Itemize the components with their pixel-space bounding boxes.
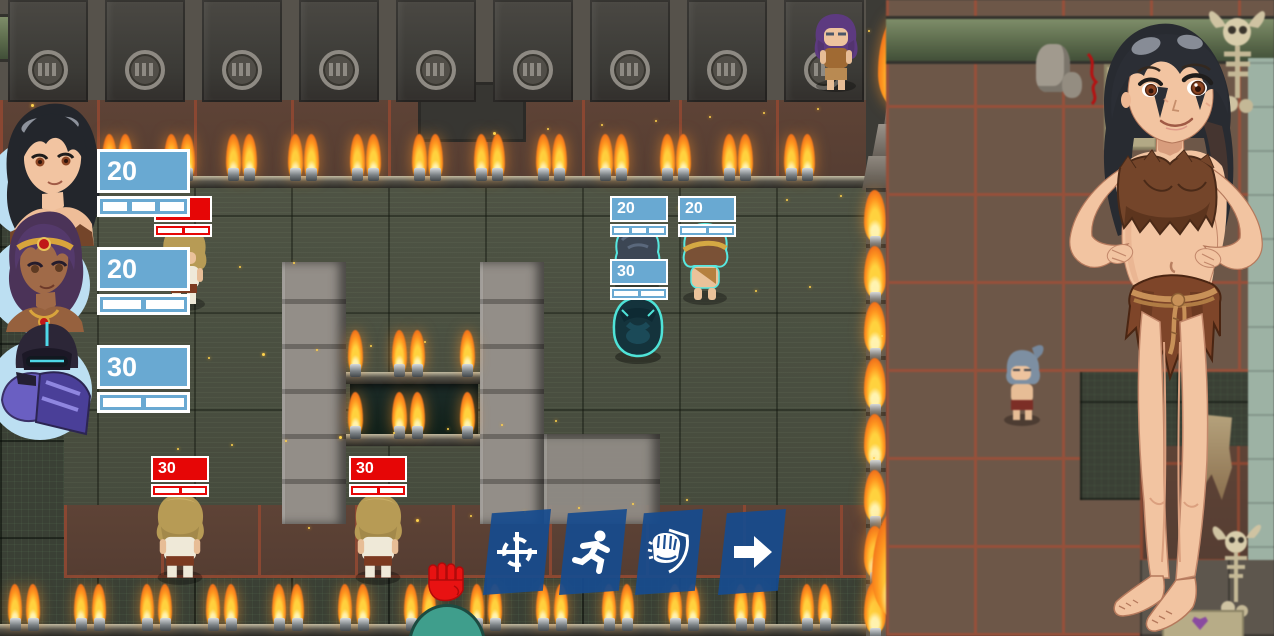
hp-pips — [349, 484, 407, 497]
torch-mount — [94, 618, 105, 631]
ember-speck — [709, 116, 711, 118]
flame-icon — [864, 190, 886, 242]
torch-mount — [244, 168, 255, 181]
wall-panel — [8, 0, 88, 102]
ember-speck — [601, 124, 603, 126]
torch-mount — [414, 168, 425, 181]
party-hp-bar: 30 — [97, 345, 190, 413]
party-hp-bar: 20 — [97, 149, 190, 217]
hp-pips — [97, 294, 190, 315]
ember-speck — [285, 440, 287, 442]
hp-pips — [610, 287, 668, 300]
hp-value: 20 — [678, 196, 736, 222]
ember-speck — [686, 499, 688, 501]
hp-value: 30 — [610, 259, 668, 285]
torch-mount — [28, 618, 39, 631]
end-turn-button[interactable] — [718, 509, 786, 595]
ember-speck — [177, 448, 179, 450]
torch-mount — [754, 618, 765, 631]
ember-speck — [424, 341, 426, 343]
run-icon — [569, 528, 617, 576]
party-hp-bar: 20 — [97, 247, 190, 315]
ember-speck — [416, 519, 419, 522]
torch-mount — [604, 618, 615, 631]
torch-mount — [538, 618, 549, 631]
ember-speck — [231, 444, 233, 446]
wall-panel — [396, 0, 476, 102]
ember-speck — [763, 112, 765, 114]
torch-mount — [462, 364, 473, 377]
unit-purple-hair-npc[interactable] — [810, 10, 862, 94]
hp-value: 20 — [610, 196, 668, 222]
ember-speck — [208, 357, 210, 359]
fist-medallion-icon — [222, 50, 262, 90]
unit-hp-bar: 20 — [610, 196, 668, 237]
hp-pips — [97, 392, 190, 413]
torch-mount — [740, 168, 751, 181]
ember-speck — [339, 436, 342, 439]
ember-speck — [316, 349, 318, 351]
torch-mount — [870, 628, 881, 636]
wall-panel — [202, 0, 282, 102]
torch-mount — [662, 168, 673, 181]
ember-speck — [873, 457, 875, 459]
torch-mount — [412, 364, 423, 377]
game-screen: 30 20 20 30 30 30 20 — [0, 0, 1274, 636]
hp-value: 20 — [97, 149, 190, 193]
torch-mount — [412, 426, 423, 439]
torch-mount — [538, 168, 549, 181]
torch-mount — [556, 618, 567, 631]
torch-mount — [350, 426, 361, 439]
torch-mount — [274, 618, 285, 631]
torch-mount — [10, 618, 21, 631]
fist-medallion-icon — [416, 50, 456, 90]
torch-mount — [600, 168, 611, 181]
torch-mount — [678, 168, 689, 181]
hp-value: 30 — [97, 345, 190, 389]
ember-speck — [308, 527, 310, 529]
ember-speck — [239, 266, 241, 268]
arrow-right-icon — [728, 528, 776, 576]
ember-speck — [501, 424, 503, 426]
hp-pips — [678, 224, 736, 237]
ember-speck — [493, 132, 496, 135]
ember-speck — [881, 335, 883, 337]
flame-icon — [864, 302, 886, 354]
fist-medallion-icon — [319, 50, 359, 90]
move-button[interactable] — [559, 509, 627, 595]
hp-pips — [154, 224, 212, 237]
torch-mount — [226, 618, 237, 631]
torch-mount — [622, 618, 633, 631]
torch-mount — [724, 168, 735, 181]
fist-shield-icon — [645, 528, 693, 576]
torch-mount — [228, 168, 239, 181]
torch-mount — [670, 618, 681, 631]
torch-mount — [358, 618, 369, 631]
torch-mount — [340, 618, 351, 631]
wall-panel — [493, 0, 573, 102]
ember-speck — [447, 428, 449, 430]
unit-hp-bar: 30 — [151, 456, 209, 497]
torch-mount — [394, 364, 405, 377]
unit-ponytail-npc[interactable] — [998, 342, 1046, 428]
torch-mount — [492, 168, 503, 181]
ember-speck — [632, 503, 634, 505]
torch-mount — [142, 618, 153, 631]
torch-mount — [352, 168, 363, 181]
character-art-cavewoman — [1056, 0, 1274, 636]
ember-speck — [470, 515, 472, 517]
red-fist-attack-icon — [424, 562, 468, 604]
unit-hp-bar: 30 — [610, 259, 668, 300]
torch-mount — [160, 618, 171, 631]
torch-mount — [208, 618, 219, 631]
unit-hp-bar: 30 — [349, 456, 407, 497]
torch-mount — [394, 426, 405, 439]
attack-button[interactable] — [635, 509, 703, 595]
wall-panel — [105, 0, 185, 102]
hp-value: 30 — [349, 456, 407, 482]
ember-speck — [868, 30, 870, 32]
unit-android-ally[interactable] — [608, 294, 668, 364]
torch-mount — [290, 168, 301, 181]
hp-pips — [610, 224, 668, 237]
torch-mount — [786, 168, 797, 181]
flame-icon — [864, 414, 886, 466]
wall-panel — [299, 0, 379, 102]
torch-mount — [554, 168, 565, 181]
fist-medallion-icon — [707, 50, 747, 90]
flame-icon — [864, 470, 886, 522]
torch-mount — [616, 168, 627, 181]
unit-hp-bar: 20 — [678, 196, 736, 237]
ember-speck — [293, 262, 295, 264]
torch-mount — [462, 426, 473, 439]
unit-blonde-grunt[interactable] — [150, 490, 210, 586]
torch-mount — [292, 618, 303, 631]
torch-mount — [802, 168, 813, 181]
torch-mount — [820, 618, 831, 631]
hp-pips — [97, 196, 190, 217]
torch-mount — [76, 618, 87, 631]
ember-speck — [262, 353, 265, 356]
torch-mount — [476, 168, 487, 181]
portrait-android[interactable] — [0, 316, 102, 438]
wall-panel — [687, 0, 767, 102]
fist-medallion-icon — [513, 50, 553, 90]
target-button[interactable] — [483, 509, 551, 595]
unit-blonde-grunt[interactable] — [348, 490, 408, 586]
torch-mount — [306, 168, 317, 181]
ember-speck — [755, 290, 757, 292]
ember-speck — [655, 120, 657, 122]
torch-mount — [368, 168, 379, 181]
torch-mount — [736, 618, 747, 631]
torch-mount — [802, 618, 813, 631]
flame-icon — [864, 358, 886, 410]
hp-value: 30 — [151, 456, 209, 482]
portrait-crowned-girl[interactable] — [0, 206, 98, 332]
flame-icon — [864, 246, 886, 298]
fist-medallion-icon — [610, 50, 650, 90]
torch-mount — [350, 364, 361, 377]
ember-speck — [547, 128, 549, 130]
hp-value: 20 — [97, 247, 190, 291]
fist-medallion-icon — [28, 50, 68, 90]
torch-mount — [430, 168, 441, 181]
action-bar — [483, 509, 786, 595]
ember-speck — [393, 432, 395, 434]
ember-speck — [555, 420, 557, 422]
crosshair-target-icon — [493, 528, 541, 576]
fist-medallion-icon — [125, 50, 165, 90]
ember-speck — [817, 108, 819, 110]
wall-panel — [590, 0, 670, 102]
ember-speck — [786, 199, 788, 201]
hp-pips — [151, 484, 209, 497]
ember-speck — [370, 345, 372, 347]
ember-speck — [809, 286, 811, 288]
ember-speck — [840, 195, 842, 197]
torch-mount — [688, 618, 699, 631]
torch-mount — [490, 618, 501, 631]
